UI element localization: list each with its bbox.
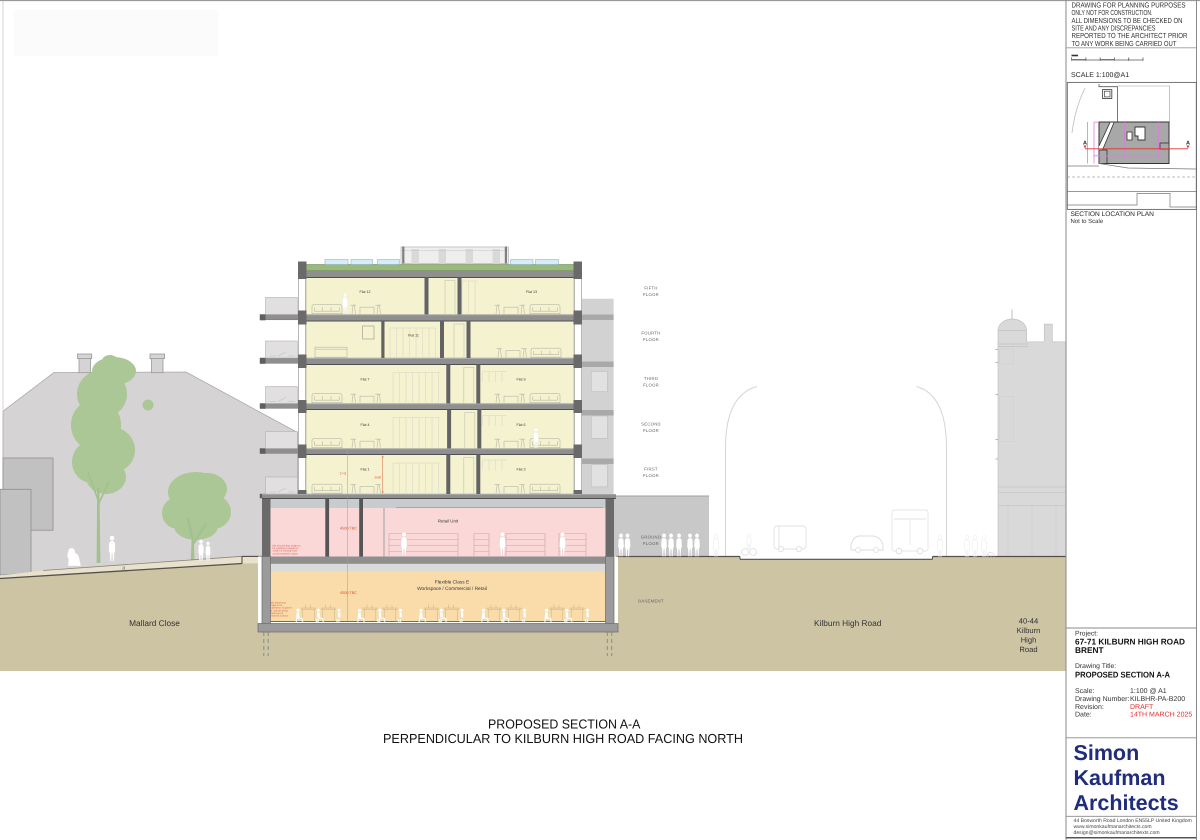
svg-text:A: A: [1186, 141, 1190, 147]
svg-text:TO ANY WORK BEING CARRIED OUT: TO ANY WORK BEING CARRIED OUT: [1072, 39, 1177, 48]
svg-text:SECOND: SECOND: [641, 422, 661, 427]
svg-text:Scale:: Scale:: [1075, 687, 1095, 695]
svg-text:4500 TBC: 4500 TBC: [340, 527, 357, 531]
svg-text:Revision:: Revision:: [1075, 703, 1104, 711]
svg-text:GROUND: GROUND: [641, 535, 661, 540]
svg-text:FLOOR: FLOOR: [643, 292, 659, 297]
svg-text:40-44: 40-44: [1019, 617, 1038, 626]
svg-text:PROPOSED SECTION A-A: PROPOSED SECTION A-A: [1075, 670, 1170, 680]
svg-text:Flexible Class E: Flexible Class E: [435, 580, 469, 586]
svg-text:Date:: Date:: [1075, 712, 1092, 719]
svg-text:BRENT: BRENT: [1075, 645, 1104, 655]
svg-text:Flat 12: Flat 12: [360, 290, 371, 294]
svg-text:High: High: [1021, 636, 1037, 645]
svg-text:Flat 7: Flat 7: [361, 378, 370, 382]
svg-text:2742: 2742: [340, 471, 347, 475]
svg-text:Drawing Number:: Drawing Number:: [1075, 695, 1130, 703]
svg-text:SCALE 1:100@A1: SCALE 1:100@A1: [1071, 71, 1129, 79]
svg-text:14TH MARCH 2025: 14TH MARCH 2025: [1130, 712, 1192, 719]
svg-text:Mallard Close: Mallard Close: [129, 618, 180, 628]
svg-text:A: A: [1083, 141, 1087, 147]
svg-text:FLOOR: FLOOR: [643, 428, 659, 433]
svg-text:Flat 4: Flat 4: [361, 423, 370, 427]
svg-text:Not to Scale: Not to Scale: [1071, 218, 1104, 225]
svg-text:Flat 11: Flat 11: [408, 334, 419, 338]
svg-text:BASEMENT: BASEMENT: [638, 599, 664, 604]
svg-text:Simon: Simon: [1074, 741, 1140, 765]
svg-text:Flat 3: Flat 3: [517, 468, 526, 472]
svg-text:THIRD: THIRD: [644, 376, 658, 381]
svg-text:Architects: Architects: [1074, 791, 1179, 815]
svg-text:Flat 6: Flat 6: [517, 423, 526, 427]
svg-text:SECTION LOCATION PLAN: SECTION LOCATION PLAN: [1071, 211, 1155, 218]
svg-text:1:100 @ A1: 1:100 @ A1: [1130, 687, 1167, 695]
svg-text:Flat 9: Flat 9: [517, 378, 526, 382]
svg-text:retained in place: retained in place: [271, 615, 289, 618]
svg-text:DRAFT: DRAFT: [1130, 704, 1154, 711]
svg-text:PERPENDICULAR TO KILBURN HIGH: PERPENDICULAR TO KILBURN HIGH ROAD FACIN…: [383, 731, 743, 746]
svg-text:Kaufman: Kaufman: [1074, 766, 1166, 790]
svg-text:can be retained in place: can be retained in place: [273, 552, 299, 555]
svg-text:FIRST: FIRST: [644, 467, 658, 472]
svg-text:FIFTH: FIFTH: [644, 286, 657, 291]
svg-text:4500 TBC: 4500 TBC: [340, 591, 357, 595]
svg-text:Road: Road: [1019, 645, 1037, 654]
svg-text:Kilburn: Kilburn: [1017, 626, 1041, 635]
svg-text:Kilburn High Road: Kilburn High Road: [814, 618, 882, 628]
svg-text:FLOOR: FLOOR: [643, 541, 659, 546]
svg-text:PROPOSED SECTION A-A: PROPOSED SECTION A-A: [488, 717, 641, 732]
svg-text:Flat 13: Flat 13: [526, 290, 537, 294]
svg-text:FLOOR: FLOOR: [643, 473, 659, 478]
svg-text:Retail Unit: Retail Unit: [438, 519, 459, 524]
svg-text:FLOOR: FLOOR: [643, 383, 659, 388]
svg-text:design@simonkaufmanarchitexts.: design@simonkaufmanarchitexts.com: [1074, 830, 1160, 836]
svg-text:FLOOR: FLOOR: [643, 337, 659, 342]
svg-text:Workspace / Commercial / Retai: Workspace / Commercial / Retail: [417, 586, 487, 592]
svg-text:KILBHR-PA-B200: KILBHR-PA-B200: [1130, 696, 1185, 703]
svg-text:2600: 2600: [375, 475, 382, 479]
svg-text:Flat 1: Flat 1: [361, 468, 370, 472]
svg-text:FOURTH: FOURTH: [641, 331, 660, 336]
